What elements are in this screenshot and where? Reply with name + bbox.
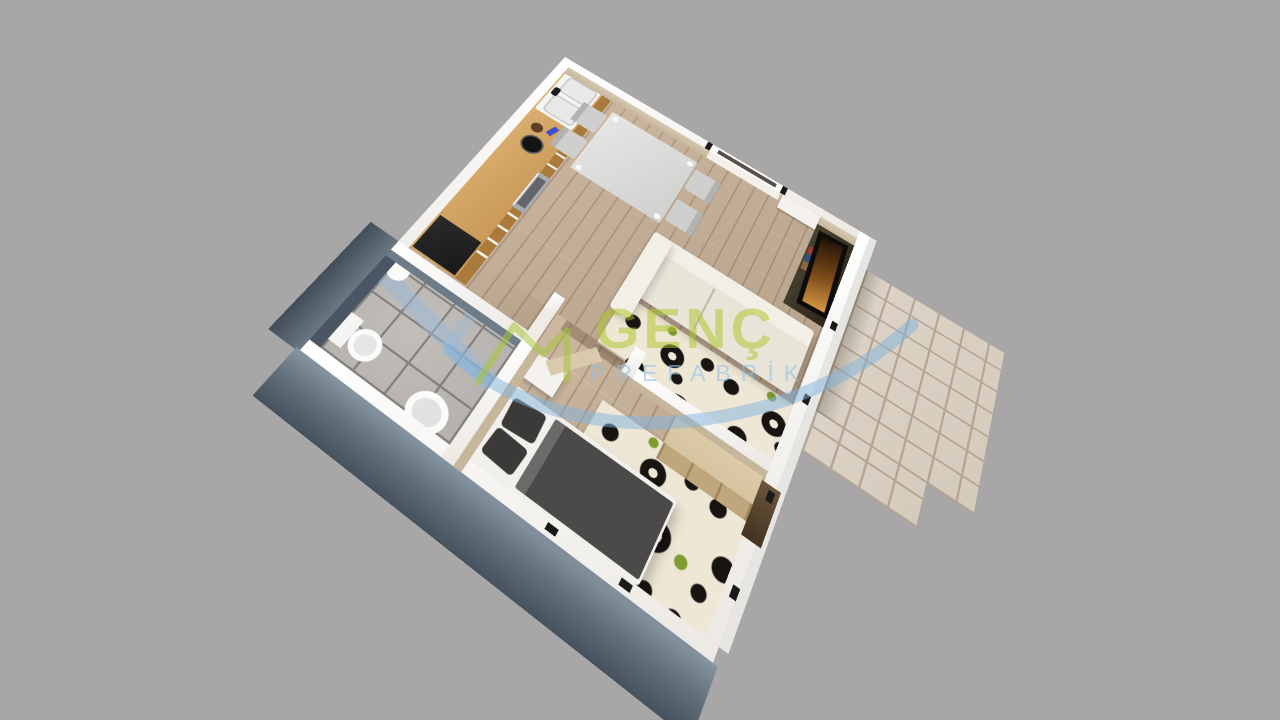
render-canvas: GENÇ PREFABRİK: [0, 0, 1280, 720]
floor-plan-3d: [300, 57, 870, 663]
